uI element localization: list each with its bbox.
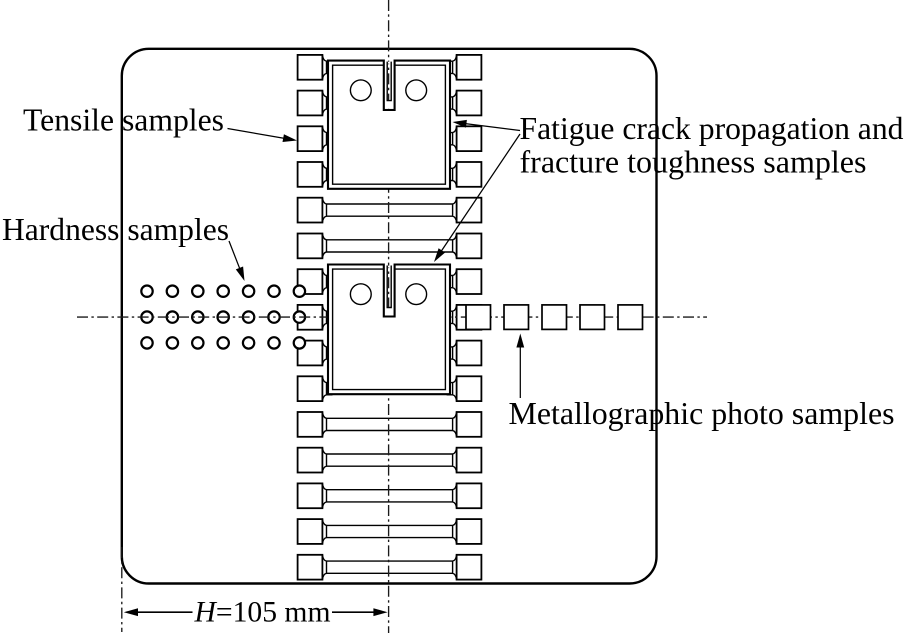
svg-text:Fatigue crack propagation and: Fatigue crack propagation and xyxy=(520,110,904,146)
svg-text:fracture toughness samples: fracture toughness samples xyxy=(520,144,867,180)
svg-text:Metallographic photo samples: Metallographic photo samples xyxy=(509,395,895,431)
svg-text:Tensile samples: Tensile samples xyxy=(23,102,224,138)
svg-text:Hardness samples: Hardness samples xyxy=(2,211,229,247)
svg-text:H=105 mm: H=105 mm xyxy=(194,596,331,629)
